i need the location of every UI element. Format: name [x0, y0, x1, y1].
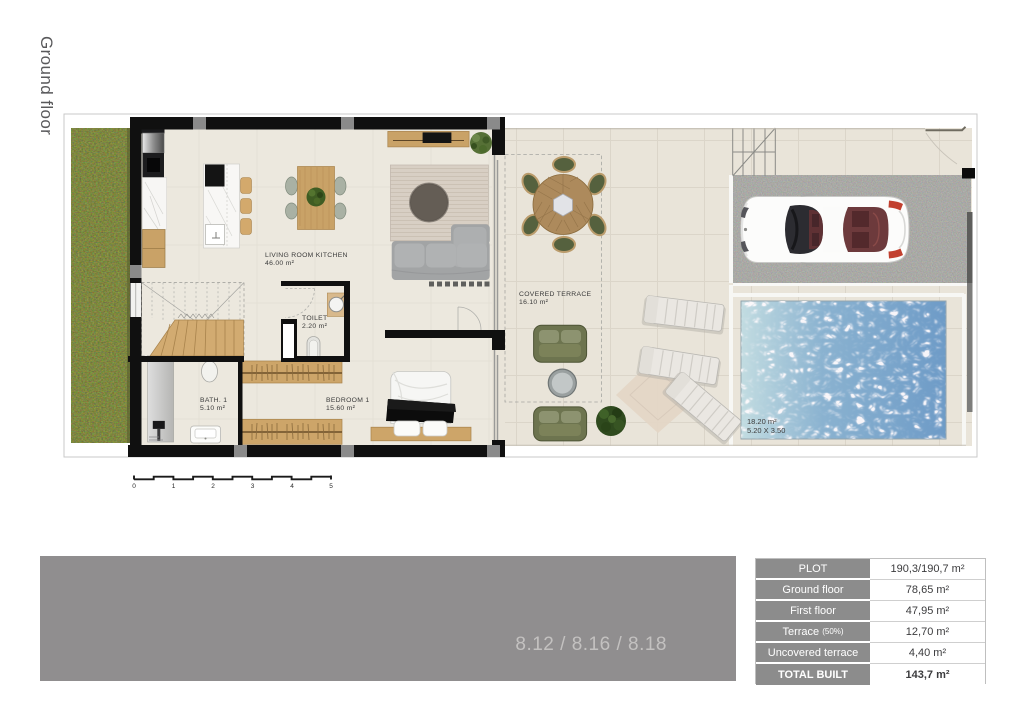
svg-text:2: 2	[211, 483, 215, 490]
svg-text:2.20 m²: 2.20 m²	[302, 323, 328, 330]
svg-text:LIVING ROOM KITCHEN: LIVING ROOM KITCHEN	[265, 252, 348, 259]
svg-text:4: 4	[290, 483, 294, 490]
svg-text:5.20 X 3.50: 5.20 X 3.50	[747, 426, 785, 435]
svg-text:TOILET: TOILET	[302, 315, 327, 322]
svg-text:BATH. 1: BATH. 1	[200, 397, 227, 404]
svg-text:18.20 m²: 18.20 m²	[747, 417, 777, 426]
svg-text:15.60 m²: 15.60 m²	[326, 405, 356, 412]
svg-text:BEDROOM 1: BEDROOM 1	[326, 397, 370, 404]
svg-text:5: 5	[329, 483, 333, 490]
svg-text:1: 1	[172, 483, 176, 490]
svg-text:0: 0	[132, 483, 136, 490]
svg-text:3: 3	[251, 483, 255, 490]
svg-text:16.10 m²: 16.10 m²	[519, 299, 549, 306]
svg-text:5.10 m²: 5.10 m²	[200, 405, 226, 412]
svg-text:COVERED TERRACE: COVERED TERRACE	[519, 291, 592, 298]
svg-text:46.00 m²: 46.00 m²	[265, 260, 295, 267]
